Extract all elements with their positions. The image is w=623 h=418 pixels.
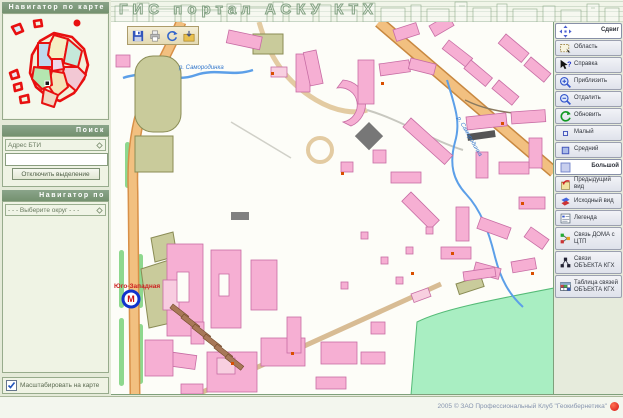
page-title: ГИС портал АСКУ КТХ bbox=[119, 1, 378, 18]
metro-station-label: Юго-Западная bbox=[114, 283, 160, 290]
district-select-value: - - - Выберите округ - - - bbox=[8, 207, 96, 214]
scale-on-map-checkbox[interactable] bbox=[6, 380, 17, 391]
export-button[interactable] bbox=[181, 28, 196, 43]
metro-letter: М bbox=[127, 294, 135, 304]
size-large-icon bbox=[558, 160, 572, 174]
map-viewport[interactable]: р. Самородинка р. Самородинка Юго-Западн… bbox=[111, 22, 554, 395]
object-links-icon bbox=[558, 256, 572, 270]
size-medium-icon bbox=[558, 143, 572, 157]
check-icon bbox=[7, 381, 16, 390]
search-box: Адрес БТИ Отключить выделение bbox=[2, 136, 109, 187]
clear-selection-button[interactable]: Отключить выделение bbox=[12, 168, 100, 180]
toolbar-button-info[interactable]: ? Справка bbox=[555, 57, 622, 73]
status-bar: 2005 © ЗАО Профессиональный Клуб "Геокиб… bbox=[0, 396, 623, 418]
refresh-map-button[interactable] bbox=[164, 28, 179, 43]
info-cursor-icon: ? bbox=[558, 58, 572, 72]
toolbar-button-zoom-out[interactable]: Отдалить bbox=[555, 91, 622, 107]
district-navigator-box: - - - Выберите округ - - - bbox=[2, 201, 109, 373]
zoom-out-icon bbox=[558, 92, 572, 106]
toolbar-button-area[interactable]: Область bbox=[555, 40, 622, 56]
toolbar-button-legend[interactable]: Легенда bbox=[555, 210, 622, 226]
toolbar-button-size-large[interactable]: Большой bbox=[555, 159, 622, 175]
search-input[interactable] bbox=[5, 153, 108, 166]
district-navigator-header: Навигатор по районам bbox=[2, 190, 109, 201]
pan-icon bbox=[558, 24, 572, 38]
toolbar-button-zoom-in[interactable]: Приблизить bbox=[555, 74, 622, 90]
river-label-top: р. Самородинка bbox=[178, 65, 224, 71]
toolbar-button-links-table[interactable]: Таблица связей ОБЪЕКТА КГХ bbox=[555, 275, 622, 298]
toolbar-button-size-small[interactable]: Малый bbox=[555, 125, 622, 141]
viewport-marker[interactable] bbox=[45, 81, 50, 86]
geocybernetica-logo-icon bbox=[610, 402, 619, 411]
refresh-icon bbox=[166, 30, 178, 42]
export-icon bbox=[183, 30, 195, 42]
scale-on-map-label: Масштабировать на карте bbox=[20, 382, 99, 389]
size-small-icon bbox=[558, 126, 572, 140]
toolbar-button-object-links[interactable]: Связи ОБЪЕКТА КГХ bbox=[555, 251, 622, 274]
chevron-down-icon bbox=[96, 207, 103, 214]
toolbar-button-initial-view[interactable]: Исходный вид bbox=[555, 193, 622, 209]
scale-option-box: Масштабировать на карте bbox=[2, 377, 109, 394]
map-toolbar bbox=[127, 26, 199, 45]
search-field-select-value: Адрес БТИ bbox=[8, 142, 96, 149]
svg-text:?: ? bbox=[567, 59, 572, 68]
refresh-icon bbox=[558, 109, 572, 123]
legend-icon bbox=[558, 211, 572, 225]
map-tools-sidebar: Сдвиг Область ? Справка Приблизить Отдал… bbox=[554, 22, 623, 395]
previous-view-icon bbox=[558, 177, 572, 191]
house-ctp-link-icon bbox=[558, 232, 572, 246]
map-canvas[interactable]: р. Самородинка р. Самородинка Юго-Западн… bbox=[111, 22, 554, 395]
chevron-down-icon bbox=[96, 142, 103, 149]
zoom-in-icon bbox=[558, 75, 572, 89]
links-table-icon bbox=[558, 280, 572, 294]
toolbar-button-previous-view[interactable]: Предыдущий вид bbox=[555, 176, 622, 192]
toolbar-button-house-ctp-link[interactable]: Связь ДОМА с ЦТП bbox=[555, 227, 622, 250]
metro-station-marker[interactable]: М bbox=[123, 291, 139, 307]
map-navigator-header: Навигатор по карте bbox=[2, 2, 109, 13]
search-field-select[interactable]: Адрес БТИ bbox=[5, 139, 106, 151]
page-header: ГИС портал АСКУ КТХ bbox=[111, 0, 623, 23]
area-select-icon bbox=[558, 41, 572, 55]
copyright-text: 2005 © ЗАО Профессиональный Клуб "Геокиб… bbox=[438, 403, 607, 410]
print-button[interactable] bbox=[147, 28, 162, 43]
search-header: Поиск bbox=[2, 125, 109, 136]
initial-view-icon bbox=[558, 194, 572, 208]
overview-map[interactable] bbox=[4, 15, 107, 118]
save-button[interactable] bbox=[130, 28, 145, 43]
toolbar-button-pan[interactable]: Сдвиг bbox=[555, 23, 622, 39]
print-icon bbox=[149, 30, 161, 42]
overview-map-box bbox=[2, 13, 109, 120]
toolbar-button-size-medium[interactable]: Средний bbox=[555, 142, 622, 158]
toolbar-button-refresh[interactable]: Обновить bbox=[555, 108, 622, 124]
save-icon bbox=[132, 30, 144, 42]
left-sidebar: Навигатор по карте bbox=[0, 0, 111, 396]
district-select[interactable]: - - - Выберите округ - - - bbox=[5, 204, 106, 216]
